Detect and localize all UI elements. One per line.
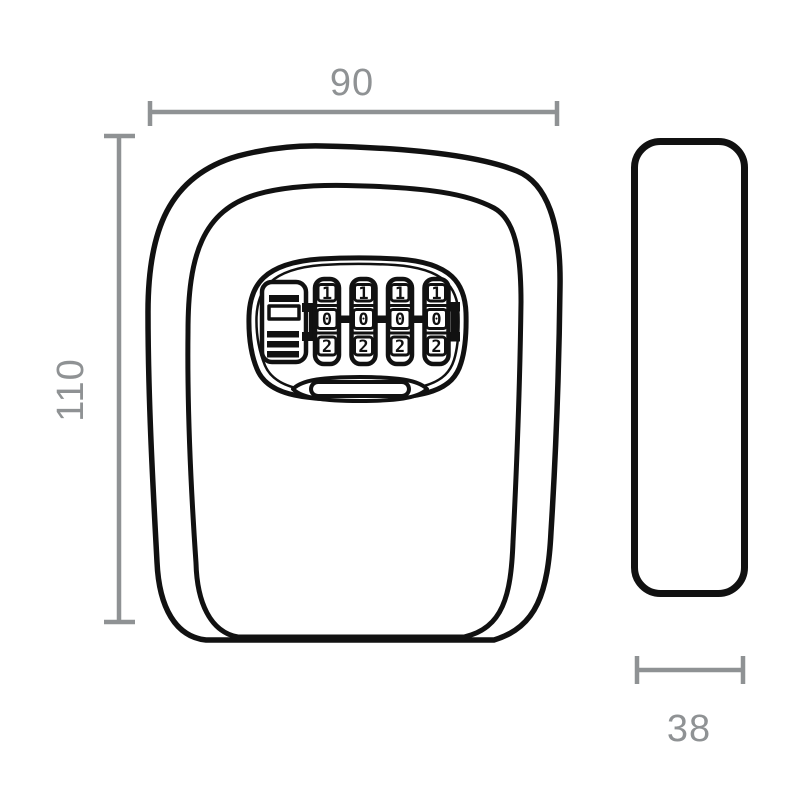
wheel-dash-3	[414, 316, 424, 324]
wheel-digit-bottom: 2	[358, 337, 368, 357]
slot-pill	[311, 382, 409, 396]
wheel-digit-bottom: 2	[322, 337, 332, 357]
dimension-height: 110	[50, 136, 135, 622]
side-view	[635, 142, 745, 594]
technical-drawing-canvas: 1 0 2 1 0 2	[0, 0, 800, 800]
wheel-digit-bottom: 2	[431, 337, 441, 357]
button-bar-2	[267, 341, 299, 348]
button-bar-3	[267, 351, 299, 358]
depth-dim-label: 38	[667, 708, 711, 750]
code-wheel-4: 1 0 2	[425, 279, 449, 364]
key-safe-drawing: 1 0 2 1 0 2	[0, 0, 800, 800]
reset-button-outline	[262, 282, 306, 362]
reset-button	[262, 282, 306, 362]
wheel-digit-top: 1	[395, 284, 405, 304]
dimension-width: 90	[150, 62, 557, 126]
wheel-digit-top: 1	[322, 284, 332, 304]
wheel-digit-middle: 0	[395, 310, 405, 330]
button-bar-1	[267, 331, 299, 338]
front-door-outline	[188, 185, 521, 637]
width-dim-label: 90	[330, 62, 374, 104]
button-bar-top	[269, 295, 299, 302]
dimension-depth: 38	[637, 656, 743, 750]
combination-panel: 1 0 2 1 0 2	[249, 258, 466, 401]
side-body-outline	[635, 142, 745, 594]
wheel-digit-top: 1	[431, 284, 441, 304]
code-wheel-3: 1 0 2	[388, 279, 412, 364]
wheel-digit-middle: 0	[358, 310, 368, 330]
wheel-digit-middle: 0	[322, 310, 332, 330]
wheel-dash-2	[377, 316, 387, 324]
wheel-digit-bottom: 2	[395, 337, 405, 357]
wheel-digit-top: 1	[358, 284, 368, 304]
front-view: 1 0 2 1 0 2	[148, 146, 560, 640]
button-window	[269, 306, 299, 319]
code-wheel-2: 1 0 2	[352, 279, 376, 364]
wheel-dash-1	[341, 316, 351, 324]
code-wheel-1: 1 0 2	[315, 279, 339, 364]
wheel-digit-middle: 0	[431, 310, 441, 330]
height-dim-label: 110	[50, 358, 92, 422]
